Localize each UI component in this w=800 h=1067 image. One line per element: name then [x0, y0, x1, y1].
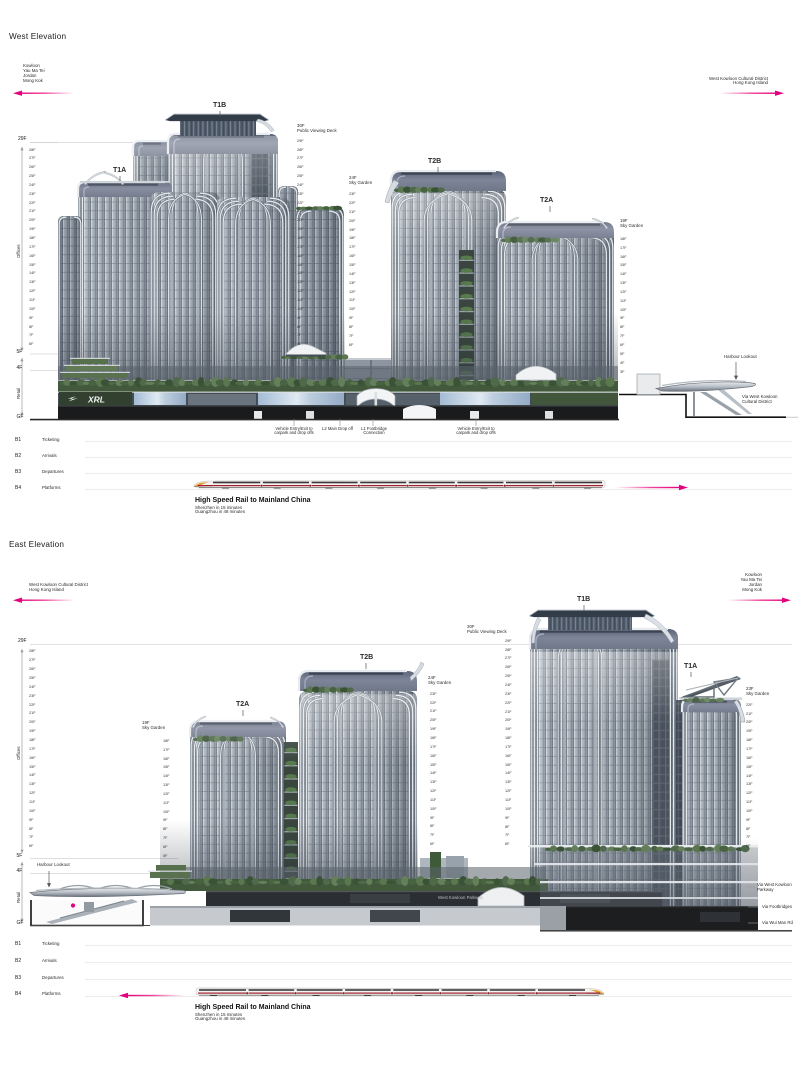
svg-text:XRL: XRL [87, 395, 105, 405]
